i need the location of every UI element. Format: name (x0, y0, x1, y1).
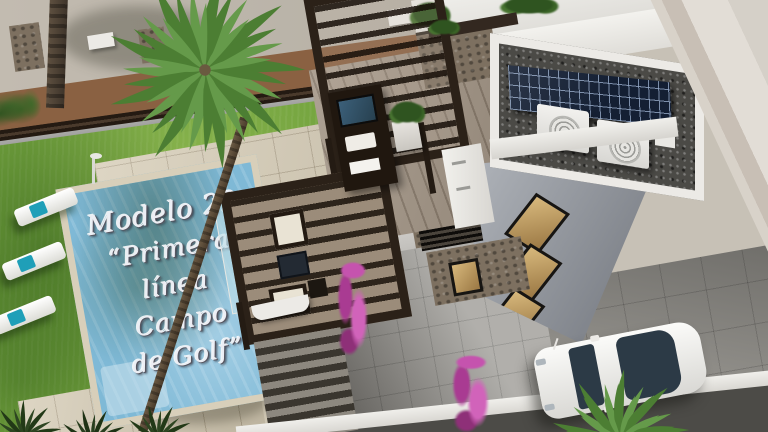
tv-screen (336, 94, 378, 128)
palm-silhouette (56, 406, 130, 432)
lounger-towel (29, 201, 49, 219)
coffee-table (277, 251, 311, 280)
lounger-towel (17, 255, 37, 273)
antenna (553, 338, 559, 350)
palm-silhouette (122, 402, 196, 432)
cabinet-handle (452, 160, 466, 165)
palm-tree (100, 0, 310, 175)
cabinet-handle (456, 186, 470, 191)
side-table (307, 278, 328, 299)
bougainvillea (334, 258, 372, 362)
palm-tree (548, 366, 693, 432)
planter-plant (384, 96, 430, 128)
lounger-towel (7, 309, 27, 327)
kitchen-sink (345, 132, 377, 152)
pergola-mid (220, 165, 412, 346)
outdoor-shower (92, 158, 95, 184)
kitchen-towel (349, 158, 381, 175)
skylight (448, 258, 483, 297)
stone-pillar (9, 22, 45, 72)
bougainvillea (448, 352, 494, 432)
palm-silhouette (0, 398, 64, 432)
villa-render: Modelo 22 “Primera línea Campo de Golf” (0, 0, 768, 432)
headlight (535, 358, 546, 366)
shrub (424, 16, 464, 38)
side-mirror (590, 335, 600, 343)
lounge-cushion (269, 209, 309, 250)
solar-panel-array (508, 65, 672, 126)
